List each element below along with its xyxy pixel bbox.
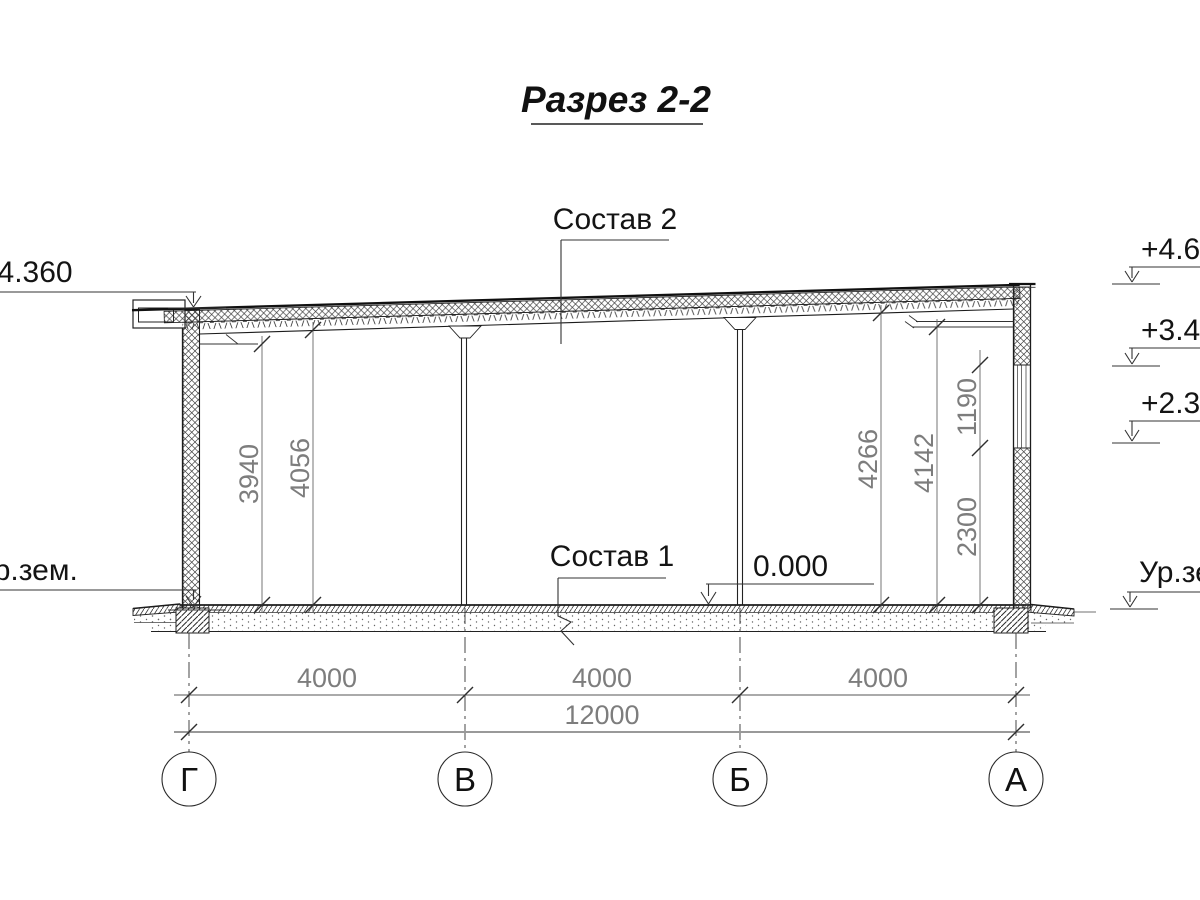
- elevation-right-mid-label: +3.49: [1141, 314, 1200, 347]
- elevation-right-low-arrow: [1112, 421, 1200, 443]
- elevation-left-roof-label: +4.360: [0, 256, 73, 289]
- zero-level-mark: 0.000: [701, 550, 874, 604]
- edge-beam-right: [905, 316, 1014, 329]
- foundation-left-hatch: [176, 608, 209, 633]
- axis-letter-b: Б: [729, 761, 751, 798]
- window: [1014, 365, 1031, 448]
- dim-right-height-1: 4266: [853, 429, 883, 489]
- window-head-sill-lines: [1014, 365, 1031, 448]
- dimension-row-total: 12000: [174, 700, 1030, 740]
- ground-level-right: Ур.зем: [1110, 556, 1200, 609]
- dim-window-sill: 2300: [952, 497, 982, 557]
- dim-span-2: 4000: [572, 663, 632, 693]
- elevation-right-mid-arrow: [1112, 348, 1200, 366]
- elevation-left-roof: +4.360: [0, 256, 226, 308]
- page-title: Разрез 2-2: [521, 79, 711, 120]
- roof-composition-leader: [561, 240, 669, 344]
- right-wall: [1009, 284, 1036, 608]
- floor-slab: [133, 604, 1096, 632]
- column-axis-b: [724, 318, 756, 606]
- ground-level-right-arrow: [1110, 592, 1200, 609]
- apron-right-base: [1031, 616, 1074, 623]
- axis-bubbles: Г В Б А: [162, 752, 1043, 806]
- ground-level-left-label: Ур.зем.: [0, 554, 78, 587]
- elevation-right-top: +4.68: [1112, 233, 1200, 284]
- elevation-right-low: +2.30: [1112, 387, 1200, 443]
- apron-left-base: [134, 616, 180, 623]
- roof-composition-label: Состав 2: [553, 203, 677, 236]
- elevation-left-roof-arrow: [0, 292, 226, 308]
- left-wall: [183, 306, 200, 608]
- column-v-capital: [449, 326, 481, 338]
- left-wall-hatch: [183, 310, 200, 608]
- dimension-row-spans: 4000 4000 4000: [174, 663, 1030, 703]
- floor-subbase: [151, 613, 1046, 632]
- zero-level-label: 0.000: [753, 550, 828, 583]
- title-block: Разрез 2-2: [521, 79, 711, 124]
- axis-letter-g: Г: [180, 761, 198, 798]
- dim-window-height: 1190: [952, 378, 982, 436]
- right-wall-lower-hatch: [1014, 448, 1031, 608]
- section-drawing: Разрез 2-2: [0, 0, 1200, 900]
- elevation-right-top-label: +4.68: [1141, 233, 1200, 266]
- axis-letter-v: В: [454, 761, 476, 798]
- zero-level-arrow: [701, 584, 874, 604]
- edge-beam-left: [200, 335, 259, 345]
- elevation-right-low-label: +2.30: [1141, 387, 1200, 420]
- dim-right-height-2: 4142: [909, 433, 939, 493]
- column-b-shaft: [738, 330, 743, 606]
- dim-span-3: 4000: [848, 663, 908, 693]
- foundation-right-hatch: [994, 608, 1028, 633]
- column-v-shaft: [462, 338, 467, 605]
- roof-assembly: [132, 285, 1020, 331]
- dim-left-height-2: 4056: [285, 438, 315, 498]
- ground-level-right-label: Ур.зем: [1139, 556, 1200, 589]
- floor-screed-hatch: [180, 605, 1031, 613]
- column-axis-v: [449, 326, 481, 605]
- dim-span-1: 4000: [297, 663, 357, 693]
- window-glazing-lines: [1018, 365, 1027, 448]
- elevation-right-mid: +3.49: [1112, 314, 1200, 366]
- dim-total: 12000: [564, 700, 639, 730]
- floor-composition-label: Состав 1: [550, 540, 674, 573]
- drawing-sheet: Разрез 2-2: [0, 0, 1200, 900]
- dim-left-height-1: 3940: [234, 444, 264, 504]
- elevation-right-top-arrow: [1112, 267, 1200, 284]
- axis-letter-a: А: [1005, 761, 1027, 798]
- column-b-capital: [724, 318, 756, 330]
